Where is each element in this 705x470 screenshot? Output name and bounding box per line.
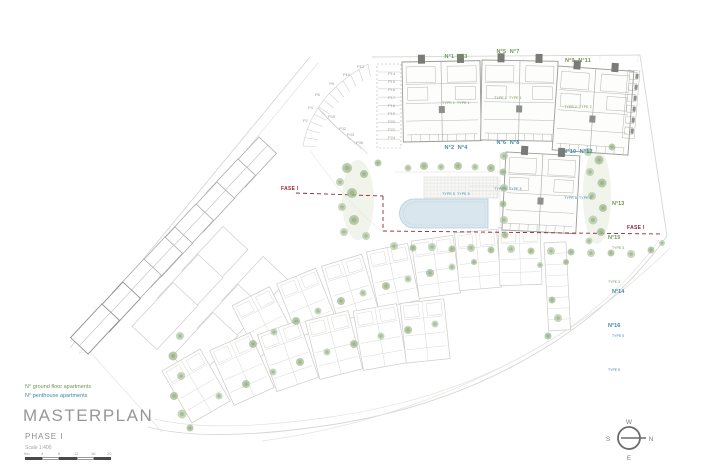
parking-stall-label: P15 (388, 79, 396, 84)
unit-numbers-ground: N°5 N°7 (478, 49, 538, 56)
parking-stall-label: P22 (388, 127, 396, 132)
compass-letter-left: S (606, 436, 611, 443)
parking-stall-label: P33 (347, 132, 355, 137)
compass-letter-right: N (649, 436, 654, 443)
scale-bar: 0m 4 8 12 16 20 (25, 451, 115, 463)
compass: W S N E (606, 419, 654, 462)
unit-types-ground: TYPE 1 TYPE 1 (478, 96, 538, 100)
parking-stall-label: P8 (329, 81, 335, 86)
parking-stall-label: P30 (328, 114, 336, 119)
legend-penthouse: N° penthouse apartments (25, 392, 91, 401)
parking-stall-label: P6 (315, 92, 321, 97)
scale-tick-label: 0m (24, 451, 30, 456)
parking-labels-layer: P2P4P6P8P10P12P14P15P16P17P18P19P20P22P2… (303, 64, 396, 145)
unit-types-ground: TYPE 2 TYPE 2 (546, 105, 610, 109)
phase-label-west: FASE I (281, 186, 299, 192)
parking-stall-label: P16 (388, 87, 396, 92)
phase-label-east: FASE I (627, 225, 645, 231)
scale-tick-label: 12 (74, 451, 78, 456)
scale-bar-segments (25, 457, 111, 460)
phase-subtitle: PHASE I (25, 432, 64, 441)
legend: N° ground floor apartments N° penthouse … (25, 383, 91, 400)
parking-stall-label: P32 (339, 126, 347, 131)
unit-numbers-penthouse: N°6 N°8 (478, 140, 538, 147)
unit-label-group-2: N°5 N°7 TYPE 1 TYPE 1 N°6 N°8 TYPE 5 TYP… (478, 9, 538, 232)
east-boundary-line (640, 55, 667, 236)
side-unit-no: N°16 (608, 323, 626, 330)
scale-tick-label: 20 (107, 451, 111, 456)
parking-stall-label: P14 (388, 71, 396, 76)
side-unit-no: N°15 (608, 235, 626, 242)
parking-stall-label: P10 (343, 72, 351, 77)
parking-stall-label: P20 (388, 119, 396, 124)
unit-numbers-penthouse: N°10 N°12 (546, 149, 610, 156)
unit-types-penthouse: TYPE 5 TYPE 5 (478, 187, 538, 191)
parking-stall-label: P19 (388, 111, 396, 116)
page-title: MASTERPLAN (23, 406, 153, 426)
compass-letter-top: W (626, 419, 633, 426)
compass-letter-bottom: E (627, 455, 632, 462)
parking-stall-label: P2 (303, 118, 309, 123)
parking-stall-label: P24 (388, 135, 396, 140)
parking-stall-label: P36 (356, 140, 364, 145)
scale-tick-label: 8 (58, 451, 60, 456)
scale-tick-label: 16 (91, 451, 95, 456)
legend-ground-floor: N° ground floor apartments (25, 383, 91, 392)
parking-stall-label: P18 (388, 103, 396, 108)
unit-numbers-ground: N°9 N°11 (546, 58, 610, 65)
masterplan-canvas: P2P4P6P8P10P12P14P15P16P17P18P19P20P22P2… (0, 0, 705, 470)
side-label-cluster-2: N°15 TYPE 3 N°16 TYPE 5 (608, 197, 626, 410)
parking-stall-label: P12 (357, 64, 365, 69)
parking-stall-label: P17 (388, 95, 396, 100)
scale-tick-label: 4 (41, 451, 43, 456)
side-unit-type: TYPE 3 (608, 280, 626, 284)
unit-label-group-3: N°9 N°11 TYPE 2 TYPE 2 N°10 N°12 TYPE 5 … (546, 18, 610, 241)
side-unit-type: TYPE 5 (608, 368, 626, 372)
unit-types-penthouse: TYPE 5 TYPE 6 (546, 196, 610, 200)
parking-stall-label: P4 (308, 105, 314, 110)
